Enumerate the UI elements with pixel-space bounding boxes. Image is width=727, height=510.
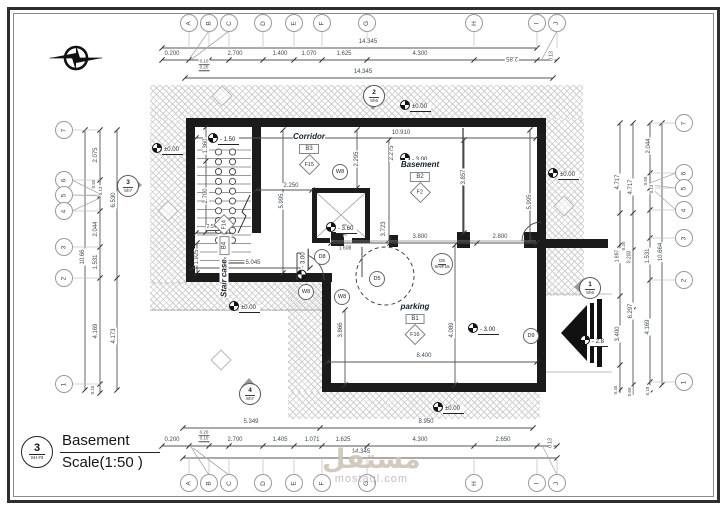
grid-bubble-label: B bbox=[206, 21, 213, 25]
dim-label: 1.625 bbox=[335, 51, 352, 57]
dim-label: 1.070 bbox=[300, 51, 317, 57]
dim-label: 2.800 bbox=[491, 234, 508, 240]
grid-bubble-label: 3 bbox=[681, 236, 688, 240]
room-tag: B2 bbox=[410, 172, 429, 182]
level-marker: ±0.00 bbox=[229, 301, 260, 311]
title-block: 3 SH #3 Basement Scale(1:50 ) bbox=[21, 432, 160, 472]
dim-label: 4.089 bbox=[449, 321, 455, 338]
dim-label: 0.200 bbox=[163, 437, 180, 443]
grid-bubble-label: F bbox=[318, 21, 325, 25]
drawing-scale: Scale(1:50 ) bbox=[60, 453, 160, 472]
dim-label: 2.250 bbox=[282, 183, 299, 189]
dim-label: 0.13 bbox=[549, 437, 554, 449]
grid-bubble-label: 7 bbox=[61, 128, 68, 132]
dim-label: 6.297 bbox=[628, 302, 634, 319]
section-marker-circle: 1Sh6 bbox=[579, 277, 601, 299]
grid-bubble: G bbox=[358, 474, 376, 492]
wall bbox=[186, 273, 332, 282]
section-number: 1 bbox=[585, 281, 595, 289]
grid-bubble-label: 1 bbox=[61, 382, 68, 386]
level-dot-icon bbox=[548, 168, 558, 178]
grid-bubble: 1 bbox=[675, 373, 693, 391]
opening-tag: D9 bbox=[523, 328, 539, 344]
level-value: ±0.00 bbox=[162, 147, 183, 155]
dim-label: 4.717 bbox=[615, 173, 621, 190]
grid-bubble-label: D bbox=[259, 21, 266, 26]
dim-label: 1.625 bbox=[334, 437, 351, 443]
grid-bubble: E bbox=[285, 14, 303, 32]
dim-label: 8.400 bbox=[415, 353, 432, 359]
dim-label: 0.16 bbox=[91, 385, 96, 396]
level-value: - 2.8 bbox=[590, 339, 608, 347]
level-marker: - 3.00 bbox=[468, 323, 499, 333]
level-marker: - 1.50 bbox=[208, 133, 239, 143]
drawing-title: Basement bbox=[60, 432, 160, 453]
dim-label: 2.044 bbox=[646, 137, 652, 154]
dim-label: 1.531 bbox=[645, 247, 651, 264]
wall bbox=[546, 239, 608, 248]
dim-label: 0.20 bbox=[199, 65, 210, 71]
grid-bubble-label: 2 bbox=[681, 278, 688, 282]
dim-label: 1.925 bbox=[194, 248, 200, 265]
grid-bubble-label: H bbox=[470, 481, 477, 486]
grid-bubble-label: 6 bbox=[61, 178, 68, 182]
room-label: BasementB2F2 bbox=[401, 160, 439, 200]
dim-label: 2.700 bbox=[203, 187, 209, 204]
drawing-sheet: AABBCCDDEEFFGGHHIIJJ7766554433221114.345… bbox=[0, 0, 727, 510]
door-clearance-circle bbox=[356, 247, 414, 305]
dim-label: 5.045 bbox=[244, 260, 261, 266]
north-arrow-icon bbox=[50, 45, 102, 71]
level-value: ±0.00 bbox=[443, 406, 464, 414]
level-dot-icon bbox=[400, 100, 410, 110]
dim-label: 0.50 bbox=[644, 176, 649, 187]
sheet-ref: SH #3 bbox=[31, 455, 44, 461]
grid-bubble-label: 7 bbox=[681, 121, 688, 125]
grid-bubble: G bbox=[358, 14, 376, 32]
grid-bubble-label: I bbox=[534, 22, 541, 24]
grid-bubble-label: 3 bbox=[61, 245, 68, 249]
level-dot-icon bbox=[433, 402, 443, 412]
dim-label: 0.200 bbox=[163, 51, 180, 57]
dim-label: 3.857 bbox=[461, 168, 467, 185]
wall bbox=[252, 127, 261, 233]
wall bbox=[312, 188, 370, 193]
opening-tag: D8 bbox=[314, 249, 330, 265]
dim-label: 10.910 bbox=[391, 130, 411, 136]
grid-bubble-label: J bbox=[554, 21, 561, 24]
level-dot-icon bbox=[326, 222, 336, 232]
wall bbox=[537, 118, 546, 392]
grid-bubble-label: 5 bbox=[61, 193, 68, 197]
grid-bubble: I bbox=[528, 14, 546, 32]
grid-bubble-label: A bbox=[186, 21, 193, 25]
grid-bubble: D bbox=[254, 14, 272, 32]
opening-tag: W8 bbox=[298, 284, 314, 300]
grid-bubble-label: F bbox=[318, 481, 325, 485]
grid-bubble-label: H bbox=[470, 21, 477, 26]
finish-tag-diamond: F16 bbox=[404, 324, 425, 345]
grid-bubble: B bbox=[200, 14, 218, 32]
dim-label: 0.50 bbox=[92, 179, 97, 190]
section-sheet: Sh6 bbox=[370, 98, 378, 103]
dim-label: 3.866 bbox=[338, 321, 344, 338]
grid-bubble: 2 bbox=[55, 269, 73, 287]
level-dot-icon bbox=[468, 323, 478, 333]
level-dot-icon bbox=[580, 335, 590, 345]
dim-label: 0.18 bbox=[646, 386, 651, 397]
level-value: - 1.50 bbox=[218, 137, 239, 145]
dim-label: 0.13 bbox=[550, 50, 555, 62]
dim-label: 4.169 bbox=[645, 318, 651, 335]
grid-bubble-label: I bbox=[534, 482, 541, 484]
grid-bubble: F bbox=[313, 14, 331, 32]
grid-bubble-label: 6 bbox=[681, 171, 688, 175]
dim-label: 2.275 bbox=[389, 144, 395, 161]
level-marker: ±0.00 bbox=[433, 402, 464, 412]
dim-label: 4.717 bbox=[628, 178, 634, 195]
level-value: ±0.00 bbox=[239, 305, 260, 313]
room-label: CorridorB3F15 bbox=[293, 132, 325, 172]
wall bbox=[312, 188, 317, 243]
grid-bubble-label: B bbox=[206, 481, 213, 485]
grid-bubble-label: 2 bbox=[61, 276, 68, 280]
dim-label: 3.400 bbox=[615, 325, 621, 342]
grid-bubble: F bbox=[313, 474, 331, 492]
dim-label: 10.664 bbox=[658, 242, 664, 262]
dim-label: 14.345 bbox=[358, 39, 378, 45]
wall bbox=[457, 232, 470, 248]
dim-label: 0.200 bbox=[628, 250, 633, 265]
dim-label: 2.295 bbox=[354, 150, 360, 167]
wall bbox=[365, 188, 370, 243]
sheet-tag: SH/F15 bbox=[434, 265, 449, 270]
section-number: 2 bbox=[369, 89, 379, 97]
earth-hatch bbox=[288, 392, 540, 419]
room-name: Basement bbox=[401, 160, 439, 169]
finish-tag-diamond: F14 bbox=[213, 214, 234, 235]
level-value: - 3.00 bbox=[301, 248, 309, 269]
dim-label: 5.995 bbox=[527, 193, 533, 210]
grid-bubble-label: E bbox=[291, 481, 298, 485]
room-label: parkingB1F16 bbox=[401, 302, 430, 342]
dim-label: 4.300 bbox=[411, 51, 428, 57]
grid-bubble: J bbox=[548, 474, 566, 492]
section-sheet: Sh7 bbox=[246, 396, 254, 401]
room-tag: B4 bbox=[219, 236, 229, 255]
level-dot-icon bbox=[208, 133, 218, 143]
grid-bubble: C bbox=[220, 14, 238, 32]
grid-bubble: B bbox=[200, 474, 218, 492]
dim-label: 0.60 bbox=[628, 387, 633, 398]
dim-label: 1.400 bbox=[271, 51, 288, 57]
earth-hatch bbox=[288, 284, 322, 392]
dim-label: 3.800 bbox=[411, 234, 428, 240]
section-sheet: Sh6 bbox=[586, 290, 594, 295]
section-marker-circle: 2Sh6 bbox=[363, 85, 385, 107]
dim-label: 0.13 bbox=[650, 184, 655, 195]
entrance-arrow-icon bbox=[561, 299, 602, 367]
dim-label: 1.531 bbox=[93, 253, 99, 270]
grid-bubble-label: G bbox=[364, 480, 371, 485]
grid-bubble-label: 4 bbox=[61, 209, 68, 213]
room-name: Stair case bbox=[220, 259, 229, 297]
grid-bubble-label: 5 bbox=[681, 186, 688, 190]
drawing-number-bubble: 3 SH #3 bbox=[21, 436, 53, 468]
section-number: 4 bbox=[245, 387, 255, 395]
section-marker: 3Sh7 bbox=[117, 175, 139, 197]
dim-label: 5.995 bbox=[279, 192, 285, 209]
level-value: ±0.00 bbox=[558, 172, 579, 180]
finish-tag: F16 bbox=[410, 331, 419, 337]
grid-bubble-label: 4 bbox=[681, 208, 688, 212]
grid-bubble: I bbox=[528, 474, 546, 492]
finish-tag-diamond: F2 bbox=[409, 182, 430, 203]
door-tag-with-sheet: D5SH/F15 bbox=[431, 253, 453, 275]
wall bbox=[389, 235, 398, 247]
level-marker: ±0.00 bbox=[548, 168, 579, 178]
dim-label: 14.345 bbox=[353, 69, 373, 75]
finish-tag: F2 bbox=[417, 189, 423, 195]
section-marker-circle: 3Sh7 bbox=[117, 175, 139, 197]
section-marker: 4Sh7 bbox=[239, 383, 261, 405]
grid-bubble: D bbox=[254, 474, 272, 492]
dim-label: 0.45 bbox=[614, 385, 619, 396]
level-value: - 3.00 bbox=[478, 327, 499, 335]
dim-label: 1.897 bbox=[616, 249, 621, 264]
level-marker: - 3.60 bbox=[326, 222, 357, 232]
grid-bubble: 7 bbox=[55, 121, 73, 139]
wall bbox=[524, 232, 539, 248]
opening-tag: W8 bbox=[332, 164, 348, 180]
level-marker: - 2.8 bbox=[580, 335, 608, 345]
grid-bubble: H bbox=[465, 474, 483, 492]
grid-bubble: 4 bbox=[55, 202, 73, 220]
dim-label: 2.700 bbox=[226, 51, 243, 57]
finish-tag-diamond: F15 bbox=[298, 154, 319, 175]
grid-bubble: 5 bbox=[675, 179, 693, 197]
dim-label: 2.650 bbox=[494, 437, 511, 443]
grid-bubble: 4 bbox=[675, 201, 693, 219]
dim-label: 2.044 bbox=[93, 220, 99, 237]
grid-bubble-label: 1 bbox=[681, 380, 688, 384]
dim-label: 0.10 bbox=[199, 436, 210, 442]
dim-label: 1.071 bbox=[303, 437, 320, 443]
dim-label: 10.66 bbox=[80, 248, 86, 265]
dim-label: 4.300 bbox=[411, 437, 428, 443]
grid-bubble-label: C bbox=[225, 21, 232, 26]
grid-bubble: 7 bbox=[675, 114, 693, 132]
grid-bubble-label: E bbox=[291, 21, 298, 25]
drawing-number: 3 bbox=[29, 443, 45, 456]
dim-label: 4.173 bbox=[111, 327, 117, 344]
dim-label: 1.608 bbox=[338, 247, 353, 252]
grid-bubble: A bbox=[180, 474, 198, 492]
level-dot-icon bbox=[152, 143, 162, 153]
dim-label: 1.405 bbox=[271, 437, 288, 443]
room-label: Stair caseB4F14 bbox=[217, 217, 232, 297]
wall bbox=[322, 383, 546, 392]
grid-bubble: H bbox=[465, 14, 483, 32]
dim-label: 8.950 bbox=[417, 419, 434, 425]
finish-tag: F15 bbox=[304, 161, 313, 167]
grid-bubble-label: D bbox=[259, 481, 266, 486]
level-dot-icon bbox=[297, 270, 307, 280]
dim-label: 0.13 bbox=[99, 186, 104, 197]
level-value: ±0.00 bbox=[410, 104, 431, 112]
grid-bubble: 3 bbox=[55, 238, 73, 256]
room-name: Corridor bbox=[293, 132, 325, 141]
wall bbox=[322, 273, 331, 392]
room-name: parking bbox=[401, 302, 430, 311]
grid-bubble: C bbox=[220, 474, 238, 492]
level-marker: ±0.00 bbox=[152, 143, 183, 153]
grid-bubble-label: G bbox=[364, 20, 371, 25]
grid-bubble: J bbox=[548, 14, 566, 32]
level-value: - 3.60 bbox=[336, 226, 357, 234]
elevation-marker-faint bbox=[210, 349, 231, 370]
dim-label: 5.349 bbox=[242, 419, 259, 425]
grid-bubble-label: C bbox=[225, 481, 232, 486]
title-text: Basement Scale(1:50 ) bbox=[60, 432, 160, 472]
grid-bubble: 2 bbox=[675, 271, 693, 289]
section-number: 3 bbox=[123, 179, 133, 187]
grid-bubble: 1 bbox=[55, 375, 73, 393]
dim-label: 2.700 bbox=[226, 437, 243, 443]
dim-label: 2.075 bbox=[93, 146, 99, 163]
opening-tag: D5 bbox=[369, 271, 385, 287]
dim-label: 4.169 bbox=[93, 322, 99, 339]
section-sheet: Sh7 bbox=[124, 188, 132, 193]
dim-label: 2.85 bbox=[505, 55, 519, 61]
level-marker: ±0.00 bbox=[400, 100, 431, 110]
finish-tag: F14 bbox=[221, 220, 227, 229]
wall bbox=[186, 118, 546, 127]
dim-label: 3.723 bbox=[381, 220, 387, 237]
section-marker: 1Sh6 bbox=[579, 277, 601, 299]
section-marker: 2Sh6 bbox=[363, 85, 385, 107]
grid-bubble: E bbox=[285, 474, 303, 492]
dim-label: 14.345 bbox=[351, 449, 371, 455]
grid-bubble-label: A bbox=[186, 481, 193, 485]
grid-bubble: A bbox=[180, 14, 198, 32]
opening-tag: W8 bbox=[334, 289, 350, 305]
level-dot-icon bbox=[229, 301, 239, 311]
level-marker: - 3.00 bbox=[297, 248, 307, 279]
grid-bubble: 3 bbox=[675, 229, 693, 247]
room-tag: B1 bbox=[405, 314, 424, 324]
section-marker-circle: 4Sh7 bbox=[239, 383, 261, 405]
grid-bubble-label: J bbox=[554, 481, 561, 484]
